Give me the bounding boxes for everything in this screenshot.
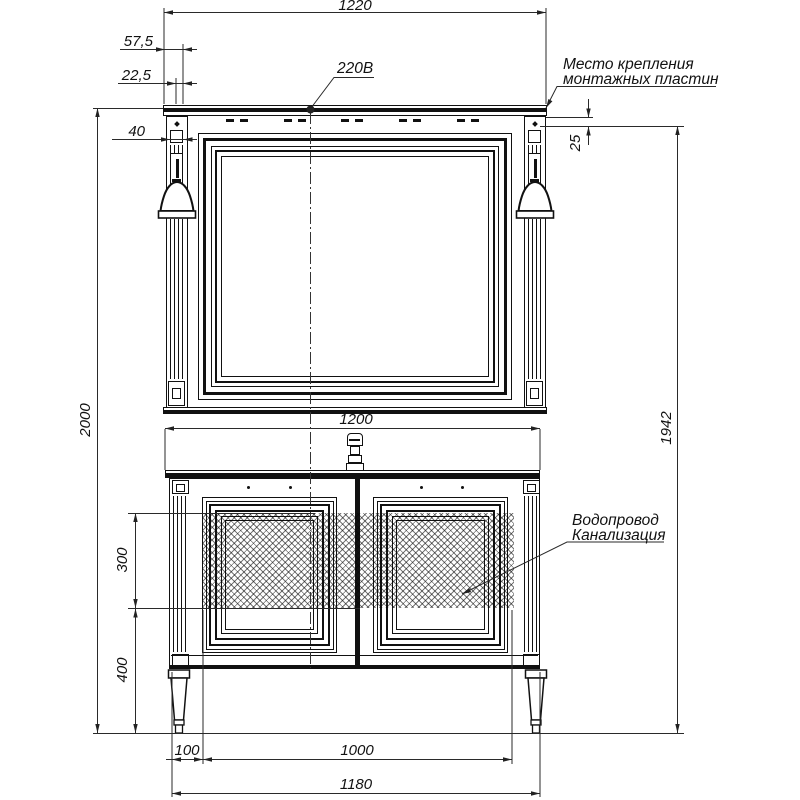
- dim-pipe-zone-width: 1000: [340, 742, 374, 759]
- dim-side-offset: 100: [174, 742, 200, 759]
- dimension-arrows: [95, 10, 679, 795]
- dim-lamp-offset-inner: 22,5: [121, 67, 152, 84]
- mounting-label-line2: монтажных пластин: [563, 71, 719, 88]
- annotations: 1220 57,5 22,5 40 2000 1942 25 1200 300 …: [0, 0, 800, 800]
- dim-pipe-zone-floor-offset: 400: [114, 657, 131, 683]
- dimension-labels: 1220 57,5 22,5 40 2000 1942 25 1200 300 …: [77, 0, 675, 793]
- dim-lamp-offset-outer: 57,5: [124, 33, 154, 50]
- plumbing-label-line2: Канализация: [572, 527, 666, 544]
- dim-mounting-height: 1942: [658, 411, 675, 445]
- dim-top-width: 1220: [338, 0, 372, 14]
- callout-labels: 220В Место крепления монтажных пластин В…: [336, 56, 719, 544]
- voltage-label: 220В: [336, 60, 373, 77]
- dim-plate-gap: 25: [567, 134, 584, 152]
- dim-cabinet-width: 1200: [339, 411, 373, 428]
- dim-pipe-zone-height: 300: [114, 547, 131, 573]
- technical-drawing: 1220 57,5 22,5 40 2000 1942 25 1200 300 …: [0, 0, 800, 800]
- dim-base-width: 1180: [340, 776, 373, 793]
- dim-column-width: 40: [128, 123, 145, 140]
- dim-overall-height: 2000: [77, 403, 94, 438]
- dimension-lines: [93, 8, 716, 797]
- outlet-point: [307, 106, 315, 114]
